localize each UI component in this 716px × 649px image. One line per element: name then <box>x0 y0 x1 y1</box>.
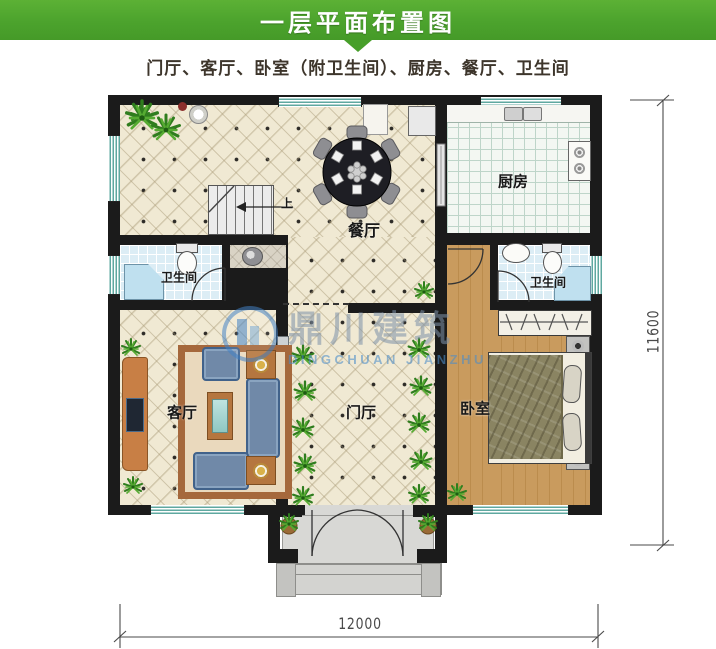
label-bathroom-right: 卫生间 <box>530 274 566 291</box>
floor-plan-page: 一层平面布置图 门厅、客厅、卧室（附卫生间）、厨房、餐厅、卫生间 <box>0 0 716 649</box>
label-kitchen: 厨房 <box>498 171 528 192</box>
plan-linework <box>0 0 716 649</box>
label-dining: 餐厅 <box>348 217 380 241</box>
label-bathroom-left: 卫生间 <box>161 269 197 286</box>
label-living: 客厅 <box>167 402 197 423</box>
label-stairs-up: 上 <box>281 195 293 212</box>
dimension-bottom: 12000 <box>329 614 391 633</box>
kitchen-sliding-door <box>437 144 445 206</box>
label-foyer: 门厅 <box>346 402 376 423</box>
dimension-lines <box>114 95 674 648</box>
plants <box>122 101 466 534</box>
label-bedroom: 卧室 <box>460 398 490 419</box>
wardrobe-hangers <box>500 314 588 330</box>
dining-table-set <box>312 126 401 218</box>
dimension-right: 11600 <box>644 307 663 357</box>
